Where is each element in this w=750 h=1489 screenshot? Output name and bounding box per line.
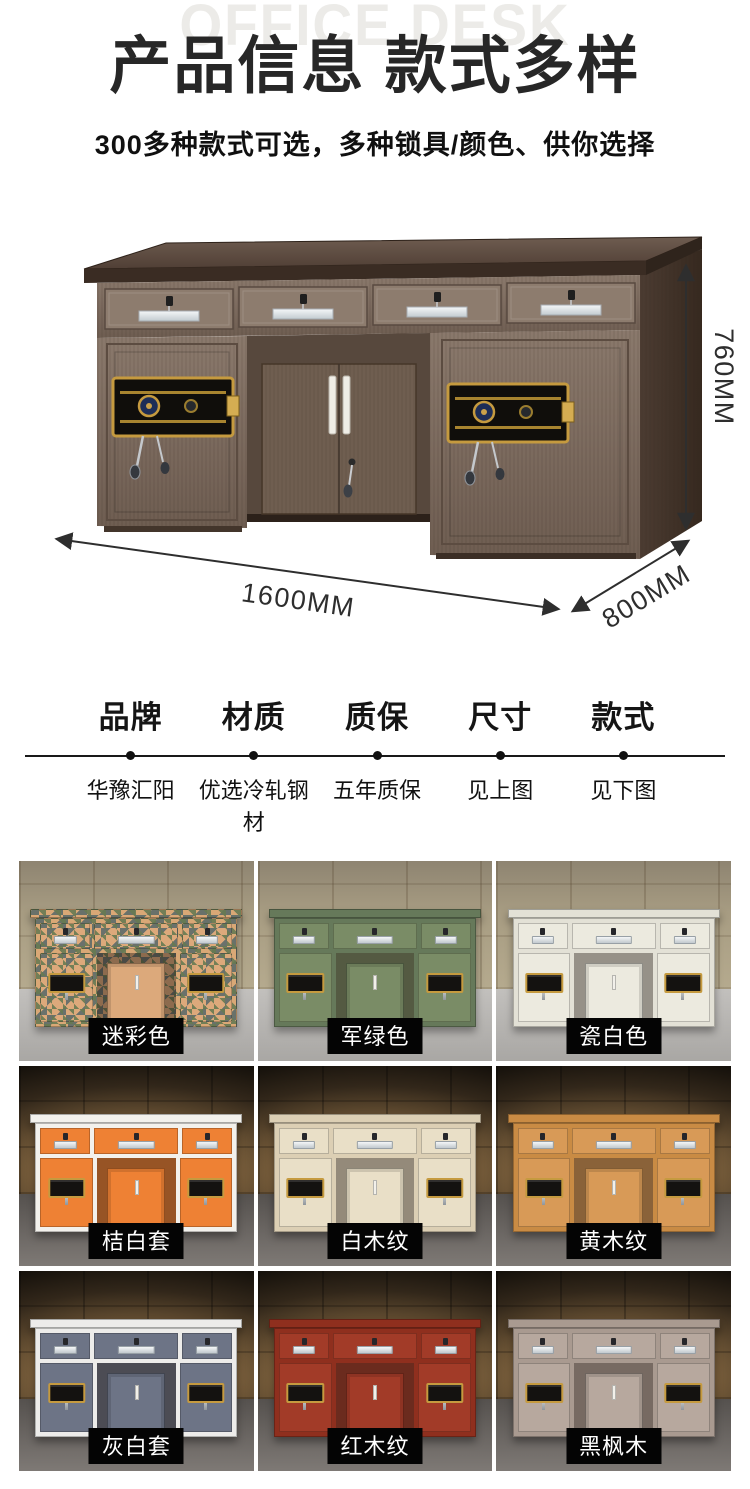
center-recess [574,953,653,1022]
cabinet-door-right [418,1363,471,1432]
desk-lower [518,1363,710,1432]
desk-thumbnail [513,1319,715,1437]
spec-strip: 品牌 材质 质保 尺寸 款式 华豫汇阳 优选冷轧钢材 五年质保 见上图 见下图 [25,692,725,837]
drawer [421,1128,471,1154]
drawer [373,285,501,325]
drawer [182,1333,232,1359]
drawer [572,923,656,949]
desk-lower [518,953,710,1022]
header: OFFICE DESK 产品信息 款式多样 300多种款式可选，多种锁具/颜色、… [0,0,750,162]
drawer-row [40,1128,232,1154]
spec-header-label: 材质 [222,700,286,735]
drawer [518,923,568,949]
door-handle [329,376,336,434]
spec-header-material: 材质 [192,692,315,755]
cabinet-door-left [40,953,93,1022]
door-handle [135,1180,139,1195]
center-recess [97,953,176,1022]
style-card-gray-white: 灰白套 [19,1271,254,1471]
desk-lower [40,1158,232,1227]
width-dimension-label: 1600MM [240,577,357,623]
drawer [333,1333,417,1359]
hanging-key [344,485,353,498]
spec-header-label: 品牌 [99,700,163,735]
cabinet-door-left [40,1363,93,1432]
desk-thumbnail [274,909,476,1027]
spec-dot [373,751,382,760]
spec-value-warranty: 五年质保 [315,773,438,837]
drawer [660,923,710,949]
spec-header-label: 质保 [345,700,409,735]
cabinet-door-left [279,1363,332,1432]
drawer [279,1333,329,1359]
desk-top [508,1319,720,1328]
desk-body [35,1123,237,1232]
door-handle [612,1385,616,1400]
drawer [333,1128,417,1154]
drawer-handle [273,309,333,319]
drawer [105,289,233,329]
spec-dot [249,751,258,760]
spec-header-style: 款式 [562,692,685,755]
drawer-row [40,1333,232,1359]
cabinet-door-left [518,953,571,1022]
cabinet-door-right [418,1158,471,1227]
style-label: 桔白套 [89,1223,184,1259]
door-handle [373,1180,377,1195]
spec-dot [619,751,628,760]
center-recess [97,1363,176,1432]
drawer [94,1128,178,1154]
style-card-orange-white: 桔白套 [19,1066,254,1266]
door-handle [343,376,350,434]
drawer-row [518,1333,710,1359]
drawer [572,1333,656,1359]
spec-value-style: 见下图 [562,773,685,837]
product-dimension-figure: 760MM 1600MM 800MM [0,172,750,642]
drawer [182,923,232,949]
desk-top [269,909,481,918]
desk-lower [40,1363,232,1432]
style-label: 灰白套 [89,1428,184,1464]
drawer-row [518,923,710,949]
desk-top [508,909,720,918]
center-recess [336,953,415,1022]
drawer [239,287,367,327]
style-card-black-maple: 黑枫木 [496,1271,731,1471]
desk-lower [279,1363,471,1432]
spec-header-label: 尺寸 [468,700,532,735]
spec-value-material: 优选冷轧钢材 [192,773,315,837]
drawer [333,923,417,949]
drawer [40,1333,90,1359]
spec-dot [496,751,505,760]
door-handle [135,975,139,990]
door-handle [135,1385,139,1400]
style-card-yellow-woodgrain: 黄木纹 [496,1066,731,1266]
desk-body [35,918,237,1027]
drawer-key [166,296,173,306]
spec-header-brand: 品牌 [69,692,192,755]
drawer-row [518,1128,710,1154]
drawer [421,1333,471,1359]
desk-thumbnail [35,1114,237,1232]
cabinet-door-left [518,1158,571,1227]
drawer [279,1128,329,1154]
desk-dimension-svg: 760MM 1600MM 800MM [0,172,750,642]
style-label: 红木纹 [327,1428,422,1464]
page-subtitle: 300多种款式可选，多种锁具/颜色、供你选择 [0,123,750,162]
cabinet-door-left [40,1158,93,1227]
drawer-key [434,292,441,302]
door-handle [373,1385,377,1400]
desk-top [30,1319,242,1328]
style-label: 军绿色 [327,1018,422,1054]
style-label: 瓷白色 [566,1018,661,1054]
drawer [572,1128,656,1154]
desk-thumbnail [274,1319,476,1437]
style-label: 黑枫木 [566,1428,661,1464]
desk-body [274,918,476,1027]
height-dimension-label: 760MM [709,328,739,426]
cabinet-door-right [657,953,710,1022]
door-handle [612,1180,616,1195]
style-label: 白木纹 [327,1223,422,1259]
cabinet-door-right [657,1363,710,1432]
drawer [518,1128,568,1154]
spec-value-brand: 华豫汇阳 [69,773,192,837]
style-label: 迷彩色 [89,1018,184,1054]
depth-dimension-label: 800MM [597,558,696,634]
cabinet-door-right [180,1158,233,1227]
cabinet-door-left [518,1363,571,1432]
drawer-key [568,290,575,300]
desk-illustration [84,237,702,559]
center-recess [574,1363,653,1432]
desk-body [274,1328,476,1437]
drawer-handle [541,305,601,315]
drawer-row [279,1128,471,1154]
style-card-red-woodgrain: 红木纹 [258,1271,493,1471]
desk-top [30,1114,242,1123]
cabinet-door-right [180,953,233,1022]
spec-dot [126,751,135,760]
desk-thumbnail [513,909,715,1027]
center-cabinet-doors [262,364,416,514]
drawer [421,923,471,949]
center-recess [336,1363,415,1432]
drawer [279,923,329,949]
spec-header-warranty: 质保 [315,692,438,755]
style-card-white-woodgrain: 白木纹 [258,1066,493,1266]
desk-lower [40,953,232,1022]
spec-value-size: 见上图 [439,773,562,837]
drawer-row [279,1333,471,1359]
center-recess [336,1158,415,1227]
desk-top [30,909,242,918]
keyhole [349,459,356,466]
desk-lower [279,953,471,1022]
spec-header-size: 尺寸 [439,692,562,755]
center-recess [97,1158,176,1227]
drawer [660,1333,710,1359]
style-card-porcelain-white: 瓷白色 [496,861,731,1061]
drawer-key [300,294,307,304]
spec-header-label: 款式 [591,700,655,735]
spec-value-row: 华豫汇阳 优选冷轧钢材 五年质保 见上图 见下图 [25,773,725,837]
drawer [40,1128,90,1154]
desk-lower [518,1158,710,1227]
drawer [94,1333,178,1359]
drawer-row [40,923,232,949]
drawer [507,283,635,323]
cabinet-door-right [657,1158,710,1227]
drawer [40,923,90,949]
style-grid: 迷彩色 军绿色 [19,861,731,1471]
door-handle [612,975,616,990]
desk-top [269,1114,481,1123]
spec-header-row: 品牌 材质 质保 尺寸 款式 [25,692,725,755]
desk-thumbnail [274,1114,476,1232]
desk-body [513,1328,715,1437]
style-label: 黄木纹 [566,1223,661,1259]
drawer [518,1333,568,1359]
page-title: 产品信息 款式多样 [0,34,750,99]
desk-thumbnail [513,1114,715,1232]
center-recess [574,1158,653,1227]
desk-body [513,918,715,1027]
desk-top [508,1114,720,1123]
cabinet-door-left [279,953,332,1022]
desk-body [274,1123,476,1232]
drawer-handle [407,307,467,317]
desk-body [513,1123,715,1232]
desk-top [269,1319,481,1328]
desk-body [35,1328,237,1437]
product-detail-page: OFFICE DESK 产品信息 款式多样 300多种款式可选，多种锁具/颜色、… [0,0,750,1489]
drawer [182,1128,232,1154]
drawer [94,923,178,949]
drawer-row [279,923,471,949]
desk-lower [279,1158,471,1227]
desk-thumbnail [35,1319,237,1437]
drawer [660,1128,710,1154]
door-handle [373,975,377,990]
style-card-army-green: 军绿色 [258,861,493,1061]
cabinet-door-right [180,1363,233,1432]
cabinet-door-right [418,953,471,1022]
style-card-camouflage: 迷彩色 [19,861,254,1061]
drawer-handle [139,311,199,321]
desk-thumbnail [35,909,237,1027]
cabinet-door-left [279,1158,332,1227]
